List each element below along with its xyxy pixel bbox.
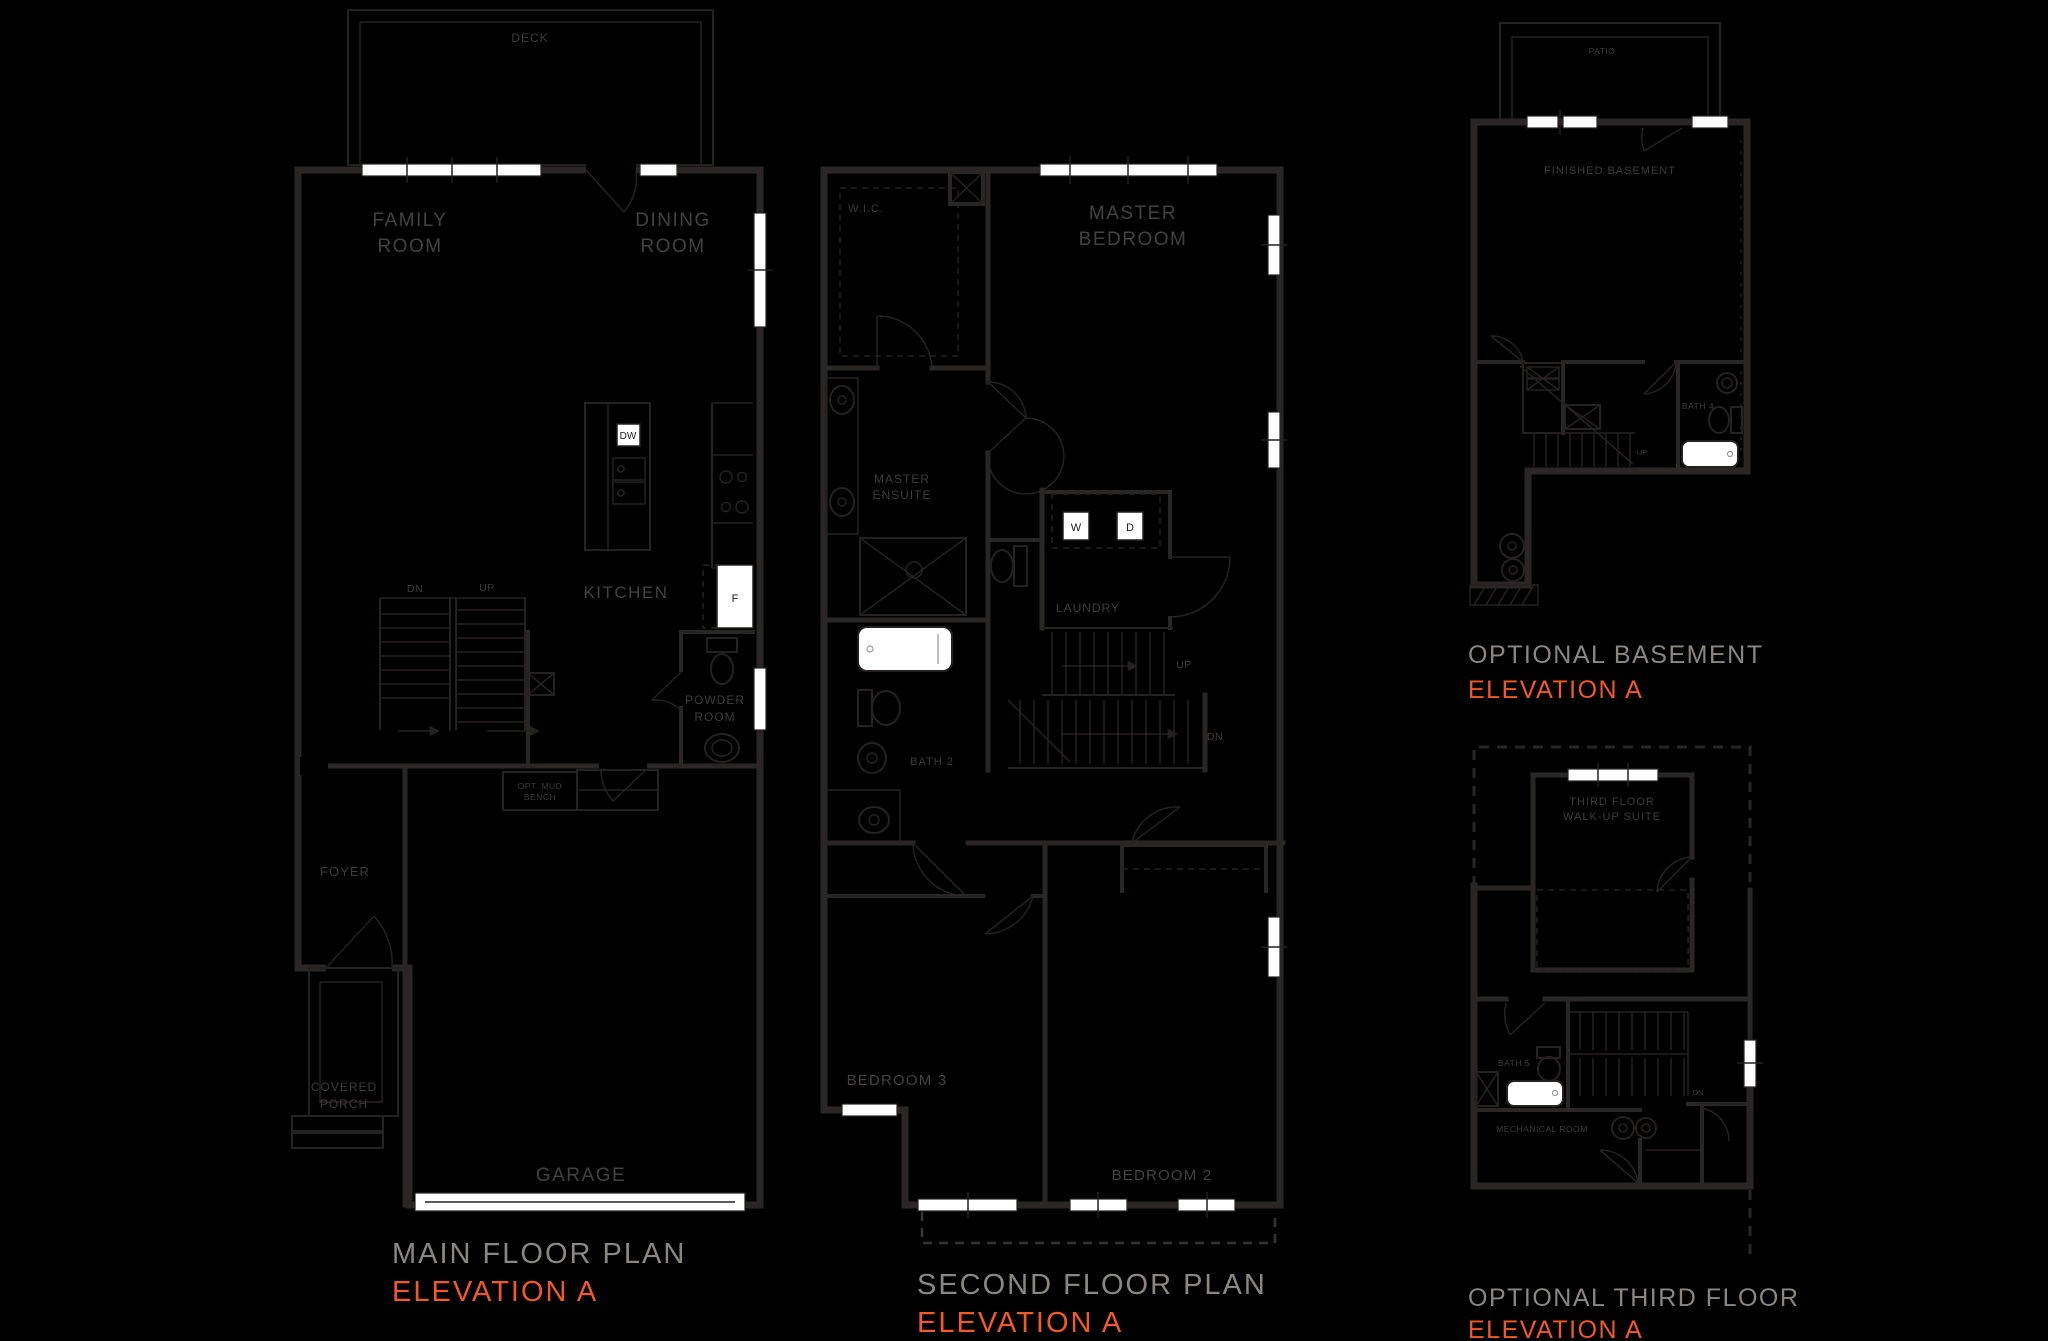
- third-floor-plan: THIRD FLOOR WALK-UP SUITE BATH 5 DN: [1468, 747, 1799, 1341]
- powder-room-label-2: ROOM: [694, 710, 735, 724]
- bedroom3-label: BEDROOM 3: [847, 1072, 948, 1089]
- stove-burner: [736, 501, 748, 513]
- family-room-window: [362, 157, 541, 183]
- garage-label: GARAGE: [536, 1165, 626, 1186]
- basement-stairs: [1520, 366, 1635, 467]
- porch-step: [292, 1116, 383, 1131]
- bath5-label: BATH 5: [1498, 1058, 1530, 1068]
- basement-entry-door: [1642, 128, 1682, 151]
- sink-faucet: [618, 490, 624, 496]
- suite-label-1: THIRD FLOOR: [1569, 796, 1655, 808]
- bedroom2-label: BEDROOM 2: [1112, 1167, 1213, 1184]
- floor-plan-sheet: DECK: [0, 0, 2048, 1341]
- bedroom3-door-opening: [985, 889, 1031, 903]
- stove-burner: [722, 503, 731, 512]
- laundry-door: [1170, 557, 1230, 617]
- powder-toilet: [707, 638, 737, 684]
- main-floor-plan: DECK: [292, 10, 773, 1308]
- stove-burner: [738, 473, 747, 482]
- patio-label: PATIO: [1589, 46, 1616, 56]
- mechanical-door: [1600, 1150, 1638, 1183]
- porch-label-2: PORCH: [320, 1097, 368, 1111]
- covered-porch: [292, 968, 398, 1148]
- basement-hall-door: [1491, 336, 1523, 362]
- porch-label-1: COVERED: [311, 1080, 377, 1094]
- third-floor-subtitle: ELEVATION A: [1468, 1316, 1643, 1341]
- deck-label: DECK: [511, 31, 548, 45]
- main-floor-subtitle: ELEVATION A: [392, 1276, 598, 1308]
- knee-wall-outline: [1537, 890, 1688, 970]
- master-bedroom-label-1: MASTER: [1089, 203, 1177, 224]
- bath4-door: [1644, 362, 1676, 394]
- suite-label-2: WALK-UP SUITE: [1563, 811, 1661, 823]
- bath2-toilet: [858, 690, 900, 726]
- second-floor-subtitle: ELEVATION A: [917, 1307, 1123, 1339]
- powder-room-label-1: POWDER: [685, 693, 745, 707]
- bath4-label: BATH 4: [1682, 401, 1714, 411]
- second-floor-plan: W.I.C. MASTER ENSUITE: [824, 156, 1287, 1339]
- stairs-down-treads: [380, 614, 450, 698]
- bath5-door: [1505, 1003, 1545, 1035]
- washer-label: W: [1071, 522, 1082, 534]
- wic-label: W.I.C.: [848, 203, 884, 215]
- kitchen-label: KITCHEN: [583, 583, 668, 602]
- third-stairs: [1568, 1012, 1688, 1096]
- ensuite-sink: [830, 488, 854, 516]
- laundry-label: LAUNDRY: [1056, 601, 1120, 615]
- patio-outline: [1500, 23, 1720, 120]
- third-right-window: [1737, 1040, 1763, 1087]
- stairs-up-label: UP: [479, 582, 495, 594]
- under-stair-closet: [528, 673, 554, 695]
- wic-door: [877, 316, 932, 368]
- basement-title: OPTIONAL BASEMENT: [1468, 641, 1763, 669]
- bath5-shower: [1476, 1072, 1498, 1106]
- ensuite-shower: [860, 538, 966, 615]
- powder-sink: [705, 734, 739, 762]
- dining-room-label-1: DINING: [635, 210, 711, 231]
- ensuite-toilet: [991, 546, 1027, 586]
- floor-plans-drawing: DECK: [0, 0, 2048, 1341]
- bath4-tub: [1682, 441, 1738, 467]
- bath2-label: BATH 2: [910, 756, 954, 768]
- second-stairs-down: [1008, 695, 1205, 770]
- mechanical-label: MECHANICAL ROOM: [1496, 1124, 1588, 1134]
- mud-bench-label-2: BENCH: [524, 792, 556, 802]
- mud-bench-label-1: OPT. MUD: [518, 781, 563, 791]
- ensuite-sink: [830, 386, 854, 414]
- stove-burner: [720, 471, 732, 483]
- stairs-dn-label: DN: [407, 583, 423, 595]
- ensuite-label-2: ENSUITE: [872, 488, 931, 502]
- second-stairs-dn-label: DN: [1207, 731, 1223, 743]
- foyer-opening: [300, 757, 328, 775]
- bottom-windows: [918, 1192, 1235, 1218]
- closet-door: [1702, 1108, 1729, 1143]
- bath5-toilet: [1537, 1047, 1560, 1081]
- suite-door: [1657, 857, 1692, 892]
- second-stairs-up-label: UP: [1176, 659, 1192, 671]
- ensuite-vanity: [826, 378, 858, 534]
- family-room-label-2: ROOM: [377, 236, 442, 257]
- bedroom3-side-window: [842, 1104, 897, 1116]
- basement-laundry-tubs: [1500, 534, 1524, 581]
- basement-exterior-walls: [1474, 122, 1747, 585]
- mud-door-opening: [599, 757, 647, 775]
- master-double-doors: [988, 382, 1064, 494]
- garage-door: [415, 1193, 745, 1211]
- main-stairs: [380, 597, 538, 731]
- second-floor-title: SECOND FLOOR PLAN: [917, 1269, 1267, 1301]
- bath5-tub: [1507, 1081, 1563, 1106]
- dining-window-side: [747, 213, 773, 327]
- kitchen-counter: [712, 403, 753, 568]
- third-stairs-dn-label: DN: [1693, 1088, 1704, 1097]
- stairs-up-treads: [456, 610, 525, 722]
- basement-subtitle: ELEVATION A: [1468, 676, 1643, 704]
- powder-room-window: [754, 668, 766, 730]
- basement-plan: PATIO FINISHED BASEMENT: [1468, 23, 1763, 704]
- third-floor-title: OPTIONAL THIRD FLOOR: [1468, 1284, 1799, 1312]
- master-bedroom-window: [1040, 156, 1217, 184]
- closet-door: [1132, 807, 1180, 843]
- bath2-tub: [858, 627, 952, 671]
- dishwasher-label: DW: [620, 431, 637, 442]
- bath4-sink: [1717, 373, 1737, 393]
- bath2-sinks: [824, 743, 900, 843]
- third-exterior-walls: [1474, 886, 1750, 1186]
- suite-window: [1568, 769, 1658, 781]
- suite-walls: [1533, 763, 1692, 970]
- basement-stairs-up-label: UP: [1637, 448, 1647, 457]
- bedroom2-closet: [1122, 807, 1266, 891]
- ensuite-label-1: MASTER: [874, 472, 930, 486]
- porch-step: [292, 1133, 383, 1148]
- dryer-label: D: [1126, 522, 1134, 534]
- sink-faucet: [618, 466, 624, 472]
- second-stairs-up: [1042, 632, 1175, 695]
- dining-room-label-2: ROOM: [640, 236, 705, 257]
- master-bedroom-label-2: BEDROOM: [1079, 229, 1188, 250]
- fridge-label: F: [732, 593, 739, 605]
- bath2-door: [913, 843, 966, 896]
- family-room-label-1: FAMILY: [372, 210, 447, 231]
- deck-door-opening: [586, 160, 636, 179]
- dining-window-top: [640, 164, 677, 176]
- fridge: [703, 565, 753, 628]
- third-laundry-tubs: [1612, 1117, 1656, 1139]
- foyer-label: FOYER: [320, 864, 370, 879]
- main-floor-title: MAIN FLOOR PLAN: [392, 1238, 686, 1270]
- finished-basement-label: FINISHED BASEMENT: [1544, 165, 1676, 177]
- third-closet: [1645, 1104, 1750, 1186]
